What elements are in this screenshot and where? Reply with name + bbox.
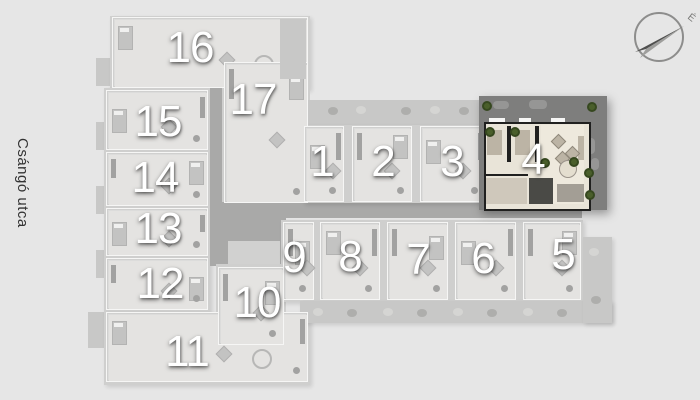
plant-icon bbox=[299, 285, 306, 292]
plant-icon bbox=[471, 187, 478, 194]
unit-7[interactable] bbox=[387, 222, 448, 300]
bush-icon bbox=[328, 107, 338, 115]
floor-plan: 1617151413121110123987654 bbox=[0, 0, 700, 400]
tree-icon bbox=[485, 127, 495, 137]
plant-icon bbox=[193, 135, 200, 142]
kitchen bbox=[557, 184, 584, 202]
compass-ring bbox=[635, 13, 683, 61]
pillow-icon bbox=[114, 224, 123, 228]
wardrobe-icon bbox=[372, 229, 377, 256]
unit-3[interactable] bbox=[420, 126, 486, 202]
unit-17[interactable] bbox=[224, 62, 308, 203]
pillow-icon bbox=[428, 142, 437, 146]
plant-icon bbox=[193, 295, 200, 302]
bush-icon bbox=[430, 106, 440, 114]
unit-6[interactable] bbox=[455, 222, 516, 300]
pillow-icon bbox=[564, 233, 573, 237]
wardrobe-icon bbox=[392, 229, 397, 256]
balcony-tick-1 bbox=[489, 118, 505, 122]
unit-15[interactable] bbox=[106, 90, 208, 150]
hallway bbox=[486, 178, 527, 204]
plant-icon bbox=[501, 285, 508, 292]
compass-north-label: É bbox=[685, 10, 698, 25]
unit-2[interactable] bbox=[352, 126, 412, 202]
unit-1[interactable] bbox=[304, 126, 344, 202]
plant-icon bbox=[193, 191, 200, 198]
unit-8[interactable] bbox=[320, 222, 380, 300]
unit-14[interactable] bbox=[106, 152, 208, 206]
plant-icon bbox=[193, 241, 200, 248]
bush-icon bbox=[557, 309, 567, 317]
wardrobe-icon bbox=[336, 133, 341, 160]
bush-icon bbox=[523, 308, 533, 316]
tree-icon bbox=[482, 101, 492, 111]
terrace-furniture-icon bbox=[529, 100, 547, 109]
plant-icon bbox=[329, 187, 336, 194]
plant-icon bbox=[566, 285, 573, 292]
balcony-tab-1 bbox=[96, 58, 110, 86]
tree-icon bbox=[540, 158, 550, 168]
unit-13[interactable] bbox=[106, 208, 208, 256]
wardrobe-icon bbox=[288, 229, 293, 256]
pillow-icon bbox=[312, 147, 321, 151]
bathroom bbox=[529, 178, 553, 204]
wardrobe-icon bbox=[229, 69, 234, 99]
terrace-16 bbox=[280, 19, 306, 79]
tree-icon bbox=[584, 168, 594, 178]
bush-icon bbox=[487, 309, 497, 317]
pillow-icon bbox=[328, 233, 337, 237]
plant-icon bbox=[433, 285, 440, 292]
unit-10[interactable] bbox=[218, 267, 284, 345]
compass-icon: É bbox=[630, 6, 698, 68]
corridor-vertical bbox=[210, 84, 222, 204]
couch bbox=[578, 136, 584, 160]
wardrobe-icon bbox=[200, 97, 205, 118]
wardrobe-icon bbox=[111, 159, 116, 178]
bush-icon bbox=[591, 296, 601, 304]
bush-icon bbox=[383, 308, 393, 316]
bush-icon bbox=[347, 309, 357, 317]
unit-9[interactable] bbox=[283, 222, 314, 300]
plant-icon bbox=[269, 330, 276, 337]
balcony-tab-5 bbox=[88, 312, 104, 348]
wardrobe-icon bbox=[223, 274, 228, 301]
balcony-tick-3 bbox=[551, 118, 565, 122]
plant-icon bbox=[365, 285, 372, 292]
tree-icon bbox=[569, 157, 579, 167]
pillow-icon bbox=[431, 238, 440, 242]
unit-12[interactable] bbox=[106, 258, 208, 310]
bush-icon bbox=[417, 309, 427, 317]
pillow-icon bbox=[114, 323, 123, 327]
tree-icon bbox=[585, 190, 595, 200]
bush-icon bbox=[356, 106, 366, 114]
wall-mid bbox=[484, 174, 528, 176]
plant-icon bbox=[397, 187, 404, 194]
elevator-core bbox=[228, 241, 280, 266]
bush-icon bbox=[453, 308, 463, 316]
pillow-icon bbox=[120, 28, 129, 32]
pillow-icon bbox=[114, 111, 123, 115]
pillow-icon bbox=[191, 163, 200, 167]
compass-needle-dark bbox=[635, 26, 684, 52]
closet-2 bbox=[535, 126, 539, 162]
pillow-icon bbox=[267, 283, 276, 287]
wardrobe-icon bbox=[508, 229, 513, 256]
pillow-icon bbox=[463, 243, 472, 247]
pillow-icon bbox=[297, 243, 306, 247]
wardrobe-icon bbox=[528, 229, 533, 256]
pillow-icon bbox=[191, 279, 200, 283]
bush-icon bbox=[313, 308, 323, 316]
bush-icon bbox=[589, 248, 599, 256]
plant-icon bbox=[293, 188, 300, 195]
wardrobe-icon bbox=[357, 133, 362, 160]
site-plan: Csángó utca 1617151413121110123987654 É bbox=[0, 0, 700, 400]
terrace-furniture-icon bbox=[493, 101, 509, 109]
tree-icon bbox=[510, 127, 520, 137]
wardrobe-icon bbox=[200, 215, 205, 232]
unit-5[interactable] bbox=[523, 222, 581, 300]
plant-icon bbox=[293, 367, 300, 374]
unit-4-highlighted[interactable] bbox=[479, 96, 607, 210]
bush-icon bbox=[459, 107, 469, 115]
balcony-tick-2 bbox=[519, 118, 531, 122]
pillow-icon bbox=[395, 137, 404, 141]
wardrobe-icon bbox=[300, 319, 305, 344]
bush-icon bbox=[401, 107, 411, 115]
wardrobe-icon bbox=[111, 265, 116, 283]
tree-icon bbox=[587, 102, 597, 112]
